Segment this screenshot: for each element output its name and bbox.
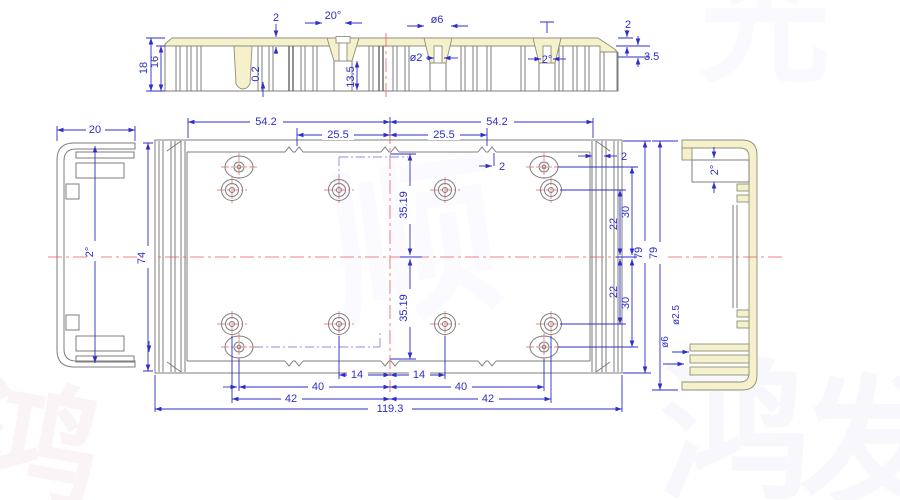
- plan-left-wall: [159, 141, 187, 372]
- dim-30-bottom: 30: [620, 297, 632, 309]
- dim-79-plan: 79: [633, 247, 645, 259]
- plan-view: 54.2 54.2 25.5 25.5 2 2 74: [136, 116, 651, 415]
- dim-40-right: 40: [455, 381, 467, 393]
- dim-dia2-5: ø2.5: [671, 305, 682, 325]
- dim-20deg: 20°: [325, 10, 342, 22]
- right-view-lip: [682, 148, 692, 160]
- dim-35-19-top: 35.19: [398, 191, 410, 219]
- dim-22-bottom: 22: [608, 286, 620, 298]
- dim-25-5-left: 25.5: [327, 129, 348, 141]
- drawing-svg: 18 16 2 20° 0.2 13.5 ø6 ø2 2° 2: [0, 0, 900, 500]
- right-view-tab: [737, 195, 749, 202]
- dim-2deg-left: 2°: [84, 247, 96, 258]
- right-view-finger: [690, 344, 749, 351]
- dim-13-5: 13.5: [345, 66, 357, 87]
- dim-42-left: 42: [285, 393, 297, 405]
- left-view-notch: [66, 184, 79, 199]
- screw-channel-1: [434, 46, 442, 63]
- left-side-view: 20 2°: [48, 124, 143, 367]
- plan-bottom-notches: [285, 361, 496, 366]
- left-view-lip: [76, 152, 134, 158]
- dim-0-2: 0.2: [250, 66, 262, 81]
- dim-54-2-left: 54.2: [255, 116, 276, 128]
- dim-dia6-side: ø6: [660, 336, 671, 348]
- dim-42-right: 42: [482, 393, 494, 405]
- dim-2deg-right: 2°: [709, 165, 721, 176]
- dim-30-top: 30: [620, 206, 632, 218]
- slot-channel: [339, 43, 347, 61]
- dim-top-wall-2: 2: [273, 12, 279, 24]
- right-view-tab: [737, 184, 749, 191]
- dim-16: 16: [149, 56, 161, 68]
- plan-right-wall: [590, 141, 618, 372]
- right-view-inner-wall: [733, 205, 737, 308]
- dim-40-left: 40: [312, 381, 324, 393]
- plan-phantom-lines: [254, 157, 408, 358]
- dim-3-5: 3.5: [644, 51, 659, 63]
- drawing-canvas: 顺 鸿 发 鸿 光: [0, 0, 900, 500]
- right-view-tab: [737, 310, 749, 317]
- left-view-groove-b: [76, 336, 124, 351]
- dim-dia2: ø2: [410, 52, 423, 64]
- dim-20: 20: [89, 124, 101, 136]
- dim-boss-slot-2deg: 2°: [542, 54, 553, 66]
- dim-25-5-right: 25.5: [433, 129, 454, 141]
- dim-79-side: 79: [648, 247, 660, 259]
- dim-22-top: 22: [608, 218, 620, 230]
- dim-54-2-right: 54.2: [486, 116, 507, 128]
- top-section-view: 18 16 2 20° 0.2 13.5 ø6 ø2 2° 2: [138, 10, 659, 97]
- dim-35-19-bottom: 35.19: [398, 294, 410, 322]
- left-view-notch-b: [66, 315, 79, 330]
- dim-14-right: 14: [413, 369, 425, 381]
- right-view-body: [682, 140, 757, 390]
- dim-end-wall-2: 2: [625, 19, 631, 31]
- plan-top-notches: [285, 147, 496, 152]
- dim-notch-2: 2: [499, 161, 505, 173]
- right-view-tab: [737, 321, 749, 328]
- dim-wall-2: 2: [621, 151, 627, 163]
- dim-119-3: 119.3: [377, 403, 404, 415]
- right-side-view: 79 2° ø2.5 ø6: [648, 140, 782, 390]
- dim-74: 74: [136, 252, 148, 264]
- slot-notch: [336, 37, 350, 44]
- right-view-finger: [690, 367, 749, 375]
- right-view-finger: [690, 355, 749, 363]
- dim-dia6: ø6: [431, 14, 444, 26]
- left-view-groove: [76, 163, 124, 178]
- dim-14-left: 14: [351, 369, 363, 381]
